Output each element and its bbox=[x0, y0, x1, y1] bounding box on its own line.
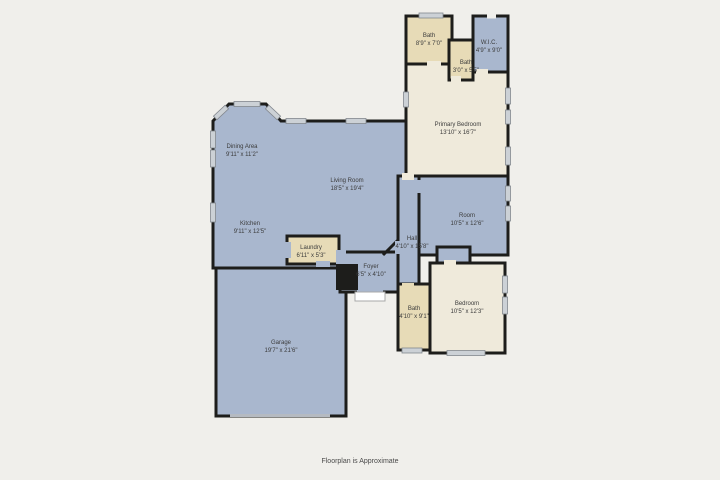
wic-shape bbox=[473, 16, 508, 72]
utility-block bbox=[336, 264, 358, 290]
bath-lower-shape bbox=[398, 284, 430, 350]
garage-door-line bbox=[230, 414, 330, 417]
hall-shape bbox=[398, 176, 419, 286]
laundry-shape bbox=[287, 236, 339, 264]
room-shape bbox=[419, 176, 508, 255]
bedroom-shape bbox=[430, 263, 505, 353]
floorplan-disclaimer: Floorplan is Approximate bbox=[0, 458, 720, 465]
garage-shape bbox=[216, 268, 346, 416]
bath-upper-shape bbox=[406, 16, 452, 64]
front-porch bbox=[355, 292, 385, 301]
floorplan-drawing bbox=[0, 0, 720, 480]
floorplan-canvas: Bath 8'9" x 7'0" W.I.C. 4'9" x 9'0" Bath… bbox=[0, 0, 720, 480]
bath-small-shape bbox=[449, 40, 473, 80]
